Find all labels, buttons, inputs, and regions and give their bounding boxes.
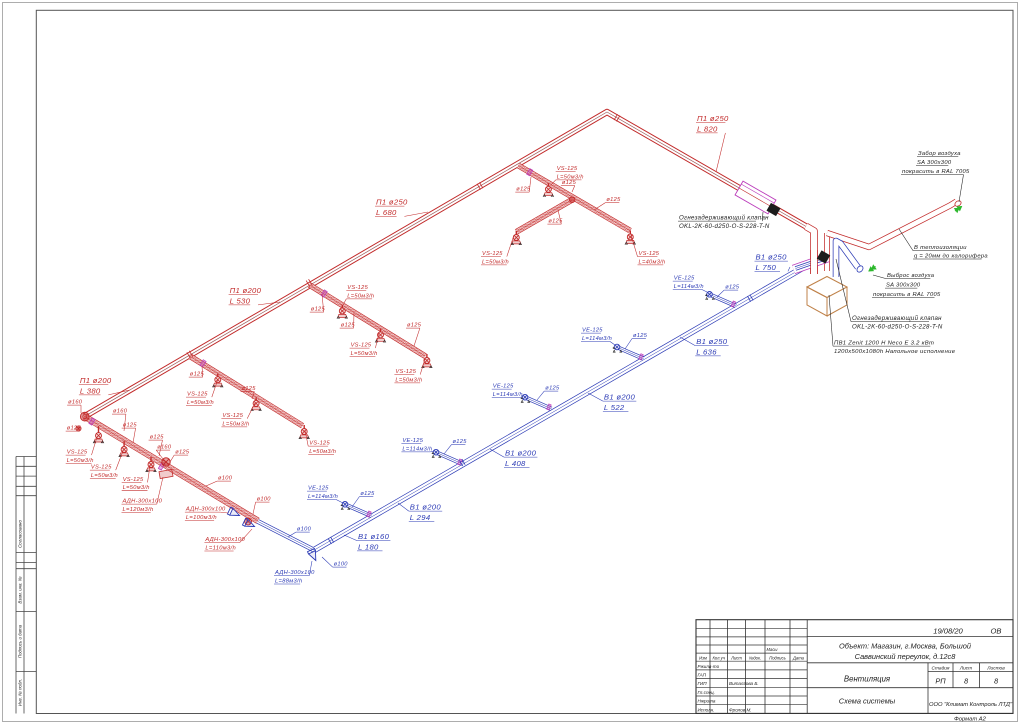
- svg-text:В1 ø160: В1 ø160: [358, 532, 390, 541]
- svg-text:L=50м3/h: L=50м3/h: [123, 485, 150, 491]
- svg-text:VE-125: VE-125: [402, 438, 423, 444]
- svg-text:L=50м3/h: L=50м3/h: [395, 377, 422, 383]
- svg-text:L=100м3/h: L=100м3/h: [186, 515, 217, 521]
- svg-text:Стадия: Стадия: [932, 665, 950, 671]
- svg-text:В1 ø200: В1 ø200: [410, 503, 442, 512]
- svg-text:L 294: L 294: [410, 513, 431, 522]
- svg-text:L 636: L 636: [696, 347, 717, 356]
- svg-text:П1 ø250: П1 ø250: [376, 198, 408, 207]
- svg-text:В теплоизоляции: В теплоизоляции: [914, 245, 967, 251]
- svg-text:L=114м3/h: L=114м3/h: [674, 284, 704, 290]
- svg-text:L 750: L 750: [756, 263, 777, 272]
- svg-text:Огнезадерживающий клапан: Огнезадерживающий клапан: [679, 215, 769, 222]
- svg-text:L=50м3/h: L=50м3/h: [351, 351, 378, 357]
- svg-text:VS-125: VS-125: [222, 413, 243, 419]
- svg-text:ø125: ø125: [606, 197, 621, 203]
- svg-text:OKL-2K-60-d250-O-S-228-T-N: OKL-2K-60-d250-O-S-228-T-N: [679, 223, 770, 230]
- svg-text:VS-125: VS-125: [557, 166, 578, 172]
- svg-text:L 820: L 820: [697, 124, 718, 133]
- svg-text:VS-125: VS-125: [91, 465, 112, 471]
- svg-text:П1 ø250: П1 ø250: [697, 114, 729, 123]
- svg-text:ø100: ø100: [297, 527, 312, 533]
- svg-text:ø125: ø125: [545, 386, 560, 392]
- svg-text:SA 300x300: SA 300x300: [917, 160, 952, 166]
- svg-text:VS-125: VS-125: [347, 285, 368, 291]
- svg-text:L 380: L 380: [80, 386, 101, 395]
- svg-text:ø125: ø125: [341, 323, 356, 329]
- svg-text:L 408: L 408: [505, 459, 526, 468]
- svg-text:L=114м3/h: L=114м3/h: [402, 446, 432, 452]
- svg-text:Огнезадерживающий клапан: Огнезадерживающий клапан: [852, 315, 942, 322]
- svg-text:OKL-2K-60-d250-O-S-228-T-N: OKL-2K-60-d250-O-S-228-T-N: [852, 324, 943, 331]
- svg-text:VS-125: VS-125: [639, 251, 660, 257]
- svg-text:Подпись и дата: Подпись и дата: [18, 624, 23, 658]
- svg-text:ø160: ø160: [68, 400, 83, 406]
- svg-text:ø160: ø160: [157, 445, 172, 451]
- svg-text:ø125: ø125: [360, 491, 375, 497]
- svg-text:№док.: №док.: [749, 655, 761, 660]
- svg-text:VE-125: VE-125: [674, 276, 695, 282]
- svg-text:L 180: L 180: [358, 542, 379, 551]
- svg-text:VS-125: VS-125: [123, 477, 144, 483]
- svg-text:Вентиляция: Вентиляция: [844, 675, 891, 684]
- svg-text:Листов: Листов: [986, 665, 1005, 671]
- svg-text:Фролов М.: Фролов М.: [729, 707, 752, 712]
- svg-text:L=120м3/h: L=120м3/h: [123, 507, 154, 513]
- svg-text:Объект: Магазин, г.Москва, Бол: Объект: Магазин, г.Москва, Большой: [839, 642, 971, 651]
- svg-text:L=50м3/h: L=50м3/h: [482, 259, 509, 265]
- svg-text:L=114м3/h: L=114м3/h: [493, 392, 523, 398]
- svg-text:L=40м3/h: L=40м3/h: [639, 259, 666, 265]
- svg-text:покрасить в RAL 7005: покрасить в RAL 7005: [902, 169, 970, 175]
- svg-text:ø125: ø125: [242, 386, 257, 392]
- svg-text:Кол.уч: Кол.уч: [712, 655, 725, 660]
- svg-text:Виталгова Б.: Виталгова Б.: [729, 681, 759, 686]
- svg-text:Подпись: Подпись: [769, 655, 786, 660]
- svg-text:q = 20мм до калорифера: q = 20мм до калорифера: [914, 253, 988, 259]
- svg-text:АДН-300x100: АДН-300x100: [274, 570, 315, 576]
- svg-text:19/08/20: 19/08/20: [933, 627, 963, 636]
- svg-text:L=50м3/h: L=50м3/h: [91, 473, 118, 479]
- svg-text:Согласовано: Согласовано: [18, 520, 23, 548]
- svg-text:В1 ø200: В1 ø200: [505, 449, 537, 458]
- svg-text:Взам. инв. №: Взам. инв. №: [18, 576, 23, 603]
- svg-text:VE-125: VE-125: [308, 486, 329, 492]
- svg-text:П1 ø200: П1 ø200: [80, 376, 112, 385]
- svg-text:L=88м3/h: L=88м3/h: [275, 578, 303, 584]
- svg-text:ООО "Климат Контроль ЛТД": ООО "Климат Контроль ЛТД": [929, 702, 1013, 708]
- svg-text:ø125: ø125: [725, 285, 740, 291]
- svg-text:VE-125: VE-125: [582, 328, 603, 334]
- svg-text:L 522: L 522: [604, 403, 625, 412]
- svg-text:L=50м3/h: L=50м3/h: [309, 449, 336, 455]
- svg-text:Масы: Масы: [766, 647, 777, 652]
- svg-text:SA 300x300: SA 300x300: [886, 283, 921, 289]
- svg-text:ø125: ø125: [150, 435, 165, 441]
- svg-text:L=50м3/h: L=50м3/h: [347, 293, 374, 299]
- svg-text:VS-125: VS-125: [482, 251, 503, 257]
- svg-text:L=110м3/h: L=110м3/h: [205, 545, 236, 551]
- svg-text:Инв. № подл.: Инв. № подл.: [18, 679, 23, 706]
- svg-text:Изм: Изм: [699, 655, 707, 660]
- svg-text:ГИП: ГИП: [698, 681, 708, 686]
- svg-text:L=50м3/h: L=50м3/h: [67, 458, 94, 464]
- svg-text:ø125: ø125: [407, 323, 422, 329]
- svg-text:РП: РП: [935, 677, 946, 686]
- svg-text:ø100: ø100: [334, 562, 349, 568]
- svg-text:В1 ø200: В1 ø200: [604, 393, 636, 402]
- svg-text:В1 ø250: В1 ø250: [696, 337, 728, 346]
- svg-text:VS-125: VS-125: [309, 441, 330, 447]
- svg-text:VE-125: VE-125: [493, 384, 514, 390]
- svg-text:Саввинский переулок, д.12с8: Саввинский переулок, д.12с8: [855, 652, 957, 661]
- svg-text:Гл.спец.: Гл.спец.: [698, 690, 715, 695]
- svg-text:АДН-300x100: АДН-300x100: [185, 507, 226, 513]
- svg-text:Лист: Лист: [959, 665, 972, 671]
- svg-text:Выброс воздуха: Выброс воздуха: [887, 273, 935, 279]
- svg-text:L=114м3/h: L=114м3/h: [582, 336, 612, 342]
- svg-text:Забор воздуха: Забор воздуха: [918, 151, 961, 157]
- svg-text:Лист: Лист: [730, 655, 742, 660]
- svg-text:1200x500x1080h Напольное испо: 1200x500x1080h Напольное исполнение: [834, 349, 956, 355]
- svg-text:покрасить в RAL 7005: покрасить в RAL 7005: [873, 292, 941, 298]
- svg-text:ø100: ø100: [257, 497, 272, 503]
- svg-text:АДН-300x100: АДН-300x100: [204, 537, 245, 543]
- svg-text:Ржилв-то: Ржилв-то: [698, 664, 720, 669]
- svg-text:L 530: L 530: [230, 296, 251, 305]
- svg-text:VS-125: VS-125: [187, 392, 208, 398]
- svg-text:ГАП: ГАП: [698, 673, 707, 678]
- svg-text:L=50м3/h: L=50м3/h: [187, 400, 214, 406]
- svg-text:П1 ø200: П1 ø200: [230, 286, 262, 295]
- svg-text:ПВ1 Zenit 1200 Н Neco E 3.2 кВ: ПВ1 Zenit 1200 Н Neco E 3.2 кВт: [834, 341, 934, 347]
- svg-text:Дата: Дата: [792, 655, 805, 660]
- svg-text:VS-125: VS-125: [67, 450, 88, 456]
- svg-text:L=114м3/h: L=114м3/h: [308, 494, 338, 500]
- svg-text:Схема системы: Схема системы: [839, 697, 896, 706]
- svg-text:Формат А2: Формат А2: [954, 717, 986, 723]
- svg-text:В1 ø250: В1 ø250: [756, 253, 788, 262]
- svg-text:ø125: ø125: [562, 180, 577, 186]
- svg-text:Нжрита: Нжрита: [698, 699, 716, 704]
- svg-text:ø160: ø160: [113, 409, 128, 415]
- svg-text:Исполн.: Исполн.: [698, 707, 715, 712]
- svg-text:VS-125: VS-125: [351, 343, 372, 349]
- svg-text:ø125: ø125: [633, 333, 648, 339]
- svg-text:ОВ: ОВ: [991, 627, 1002, 636]
- svg-text:ø125: ø125: [516, 187, 531, 193]
- svg-text:ø125: ø125: [453, 439, 468, 445]
- svg-text:ø100: ø100: [218, 476, 233, 482]
- svg-text:АДН-300x100: АДН-300x100: [122, 499, 163, 505]
- svg-text:VS-125: VS-125: [395, 369, 416, 375]
- svg-text:ø125: ø125: [175, 450, 190, 456]
- svg-text:L 680: L 680: [376, 208, 397, 217]
- svg-text:L=50м3/h: L=50м3/h: [222, 421, 249, 427]
